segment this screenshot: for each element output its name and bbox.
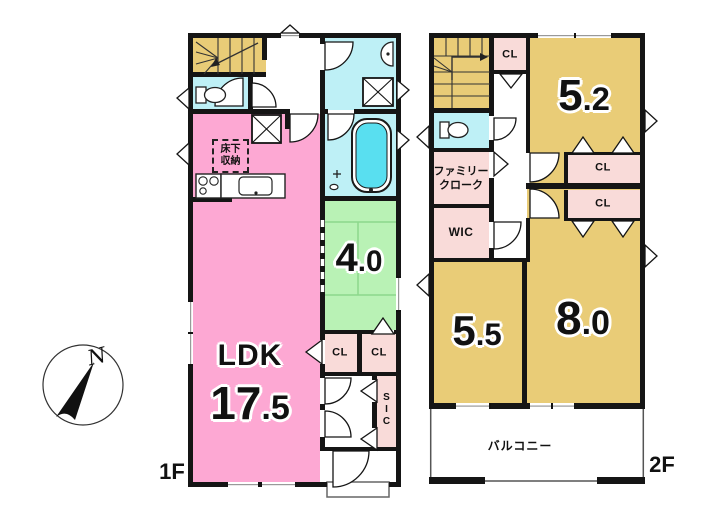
window-icon [281,25,299,33]
toilet-bowl-icon [448,123,468,138]
room-8-0-area-label: 8.0 [556,295,610,341]
wic-label: WIC [449,226,474,238]
closet-upper-2f-label: CL [595,163,611,174]
toilet-bowl-icon [205,88,226,103]
ldk-label: LDK [218,341,283,371]
floor-plan: LDK 17.5 4.0 5.2 5.5 8.0 CL CL SIC 床下 収納… [0,0,705,525]
floor-2-drawing [417,33,657,484]
bucket-icon [330,184,338,189]
floor-1-label: 1F [159,461,185,483]
room-5-2-area-label: 5.2 [558,74,610,118]
washitsu-area-label: 4.0 [336,238,383,278]
window-icon [645,245,657,267]
compass-icon [43,345,123,425]
ldk-area-label: 17.5 [210,380,290,426]
shoe-closet-label: SIC [381,392,391,428]
window-icon [417,274,429,296]
family-closet-label: ファミリー クローク [434,165,489,194]
window-icon [177,143,189,165]
balcony-label: バルコニー [488,440,553,452]
room-5-5-area-label: 5.5 [452,310,501,352]
window-icon [177,88,189,109]
window-icon [397,130,409,151]
fixtures-2f [440,122,468,138]
window-icon [417,126,429,148]
closet-lower-2f-label: CL [595,199,611,210]
closet-right-1f-label: CL [371,348,387,359]
underfloor-storage-label: 床下 収納 [212,139,249,173]
floor-2-label: 2F [649,454,675,476]
window-icon [645,110,657,132]
closet-left-1f-label: CL [332,348,348,359]
window-icon [397,80,409,101]
closet-top-2f-label: CL [502,50,518,61]
